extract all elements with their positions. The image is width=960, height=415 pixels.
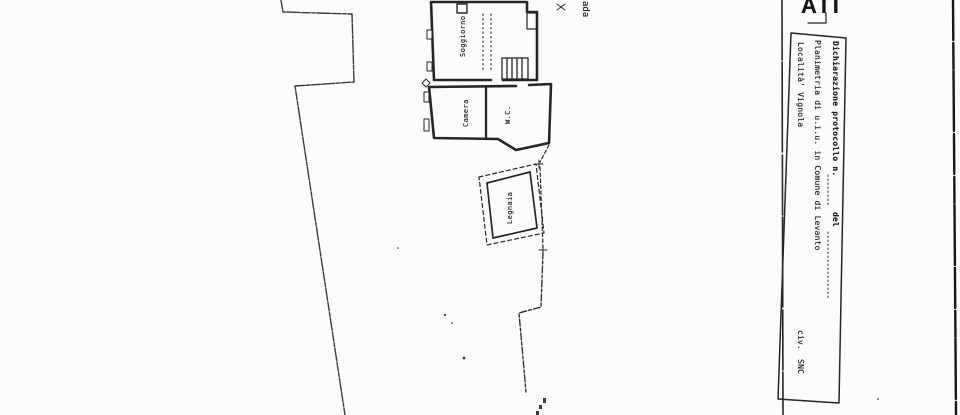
room-label-legnaia: Legnaia [506, 192, 514, 224]
pillar-marker [457, 4, 467, 13]
street-tick-mark [557, 4, 565, 10]
scan-noise-specks [397, 247, 879, 415]
window-marker [424, 92, 429, 102]
dotted-partition [483, 14, 491, 70]
boundary-connector [519, 145, 549, 392]
title-block-civ-line: civ.SNC [796, 330, 805, 374]
street-label-fragment: ada [580, 1, 590, 17]
civ-label: civ. [796, 330, 805, 350]
room-label-camera: Camera [462, 99, 470, 127]
scanned-floor-plan-document: ATI ada Soggiorno Camera W.C. Legnaia Di… [0, 0, 960, 415]
window-marker [427, 62, 432, 71]
room-label-soggiorno: Soggiorno [459, 15, 467, 57]
title-block-planimetria-line: Planimetria di u.i.u. in Comune di Levan… [813, 40, 822, 251]
parcel-boundary [281, 0, 354, 415]
title-block-declaration-label: Dichiarazione protocollo n. [831, 41, 840, 176]
scan-edge-line [953, 0, 956, 415]
civ-value: SNC [796, 359, 805, 374]
staircase [502, 58, 528, 79]
title-block-del-label: del [831, 212, 840, 227]
window-marker [424, 119, 429, 131]
room-label-wc: W.C. [504, 106, 512, 124]
stamp-left-rule [782, 0, 783, 415]
building-lower-block [422, 79, 551, 150]
title-block-localita-line: Località' Vignola [796, 42, 805, 127]
window-marker [427, 30, 432, 39]
stamp-partial-text: ATI [801, 0, 841, 19]
building-upper-block [427, 2, 537, 80]
